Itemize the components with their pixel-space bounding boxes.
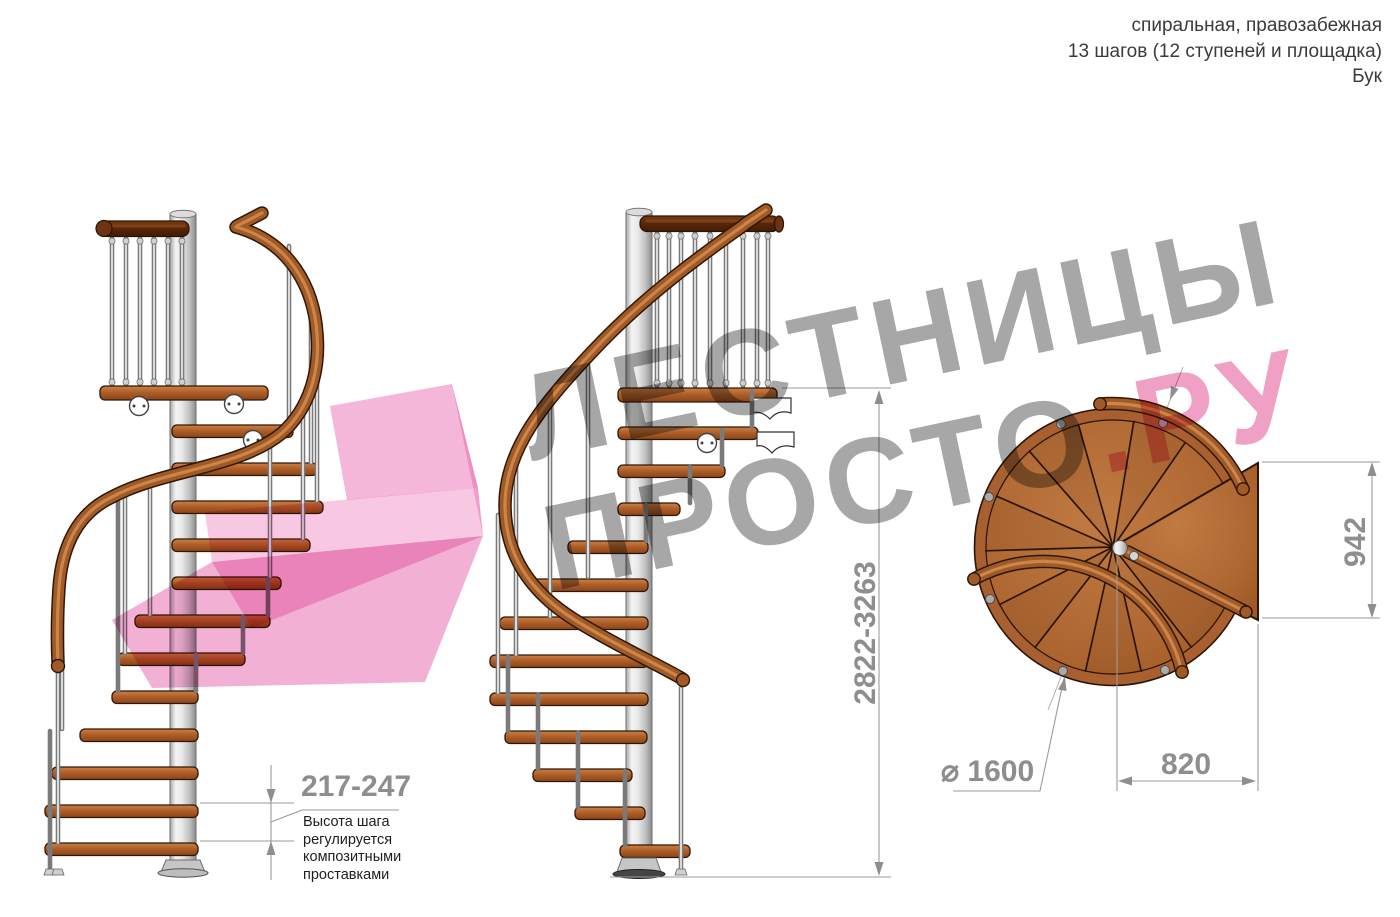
spec-steps: 13 шагов (12 ступеней и площадка)	[1068, 39, 1382, 65]
spec-material: Бук	[1068, 64, 1382, 90]
rod-foot	[675, 869, 687, 875]
pole-base	[613, 858, 665, 879]
balustrade-top-rail	[96, 221, 189, 237]
dimension-step-height: 217-247	[301, 771, 411, 803]
dimension-total-height: 2822-3263	[850, 558, 882, 708]
plan-center-pole	[1113, 541, 1128, 556]
pole-base	[158, 860, 208, 877]
dimension-diameter: ⌀ 1600	[941, 756, 1034, 788]
platform-step	[100, 386, 268, 400]
dimension-plan-depth: 942	[1340, 492, 1372, 592]
pink-arrow-watermark	[112, 384, 483, 688]
dimension-plan-width: 820	[1126, 749, 1246, 781]
spec-header: спиральная, правозабежная 13 шагов (12 с…	[1068, 13, 1382, 90]
step-height-note: Высота шага регулируется композитными пр…	[303, 814, 401, 884]
rod-foot	[52, 869, 64, 875]
spec-type: спиральная, правозабежная	[1068, 13, 1382, 39]
technical-drawing-canvas: спиральная, правозабежная 13 шагов (12 с…	[0, 0, 1400, 917]
